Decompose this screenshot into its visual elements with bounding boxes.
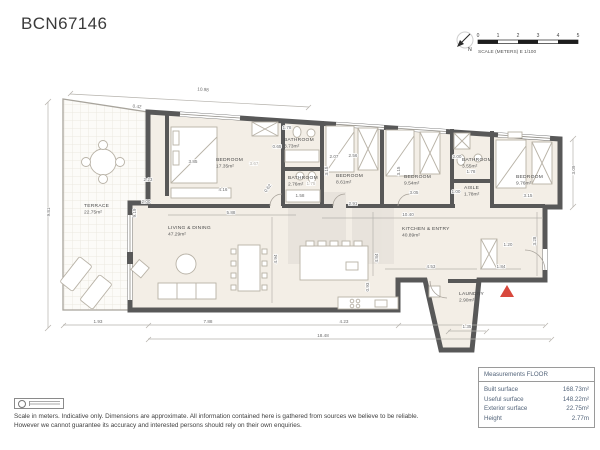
disclaimer-line-1: Scale in meters. Indicative only. Dimens… xyxy=(14,412,574,421)
dimension-label: 2.56 xyxy=(349,153,358,158)
dimension-label: 3.67 xyxy=(250,161,259,166)
terrace-table xyxy=(90,149,116,175)
dimension-label: 9.81 xyxy=(46,207,51,216)
dimension-label: 4.23 xyxy=(340,319,349,324)
dimension-label: 4.84 xyxy=(374,253,379,262)
dining-table xyxy=(238,245,260,291)
dimension-label: 1.78 xyxy=(467,169,476,174)
dimension-label: 10.40 xyxy=(402,212,414,217)
room-area-label: 2.76m² xyxy=(288,182,304,188)
room-label: TERRACE xyxy=(84,203,110,209)
sink xyxy=(307,129,315,137)
dimension-label: 3.15 xyxy=(324,166,329,175)
room-label: BEDROOM xyxy=(516,174,543,180)
room-label: BATHROOM xyxy=(284,137,314,143)
scale-label: SCALE (METERS) E 1/100 xyxy=(478,49,536,55)
room-label: LAUNDRY xyxy=(459,291,485,297)
room-area-label: 1.78m² xyxy=(464,192,480,198)
room-area-label: 2.90m² xyxy=(459,298,475,304)
north-label: N xyxy=(468,47,472,53)
row-value: 168.73m² xyxy=(563,385,589,395)
room-area-label: 40.89m² xyxy=(402,233,420,239)
table-row: Useful surface 148.22m² xyxy=(484,395,589,405)
dimension-label: 1.20 xyxy=(504,242,513,247)
room-label: BATHROOM xyxy=(462,157,492,163)
measurements-header: Measurements FLOOR xyxy=(479,368,594,382)
disclaimer: Scale in meters. Indicative only. Dimens… xyxy=(14,412,574,430)
floorplan-page: BCN67146 N 012345 SCALE (METERS) E 1/100 xyxy=(0,0,600,450)
room-area-label: 8.61m² xyxy=(336,180,352,186)
room-area-label: 22.75m² xyxy=(84,210,102,216)
dimension-label: 1.93 xyxy=(94,319,103,324)
scale-tick: 3 xyxy=(537,33,540,39)
dimension-label: 18.48 xyxy=(317,333,329,338)
dimension-label: 1.00 xyxy=(452,189,461,194)
room-area-label: 9.76m² xyxy=(516,181,532,187)
dimension-label: 4.94 xyxy=(273,254,278,263)
logo-text-bars xyxy=(29,401,60,406)
dimension-label: 5.88 xyxy=(227,210,236,215)
dimension-label: 1.35 xyxy=(463,324,472,329)
dimension-label: 1.58 xyxy=(296,193,305,198)
scale-tick: 0 xyxy=(477,33,480,39)
dimension-label: 3.15 xyxy=(396,166,401,175)
bed xyxy=(326,126,354,172)
dimension-label: 1.75 xyxy=(307,181,316,186)
dimension-label: 0.65 xyxy=(273,144,282,149)
counter-sink xyxy=(375,300,387,307)
row-value: 2.77m xyxy=(572,414,589,424)
sofa xyxy=(158,283,216,299)
dimension-label: 0.93 xyxy=(365,282,370,291)
dimension-label: 2.91 xyxy=(349,201,358,206)
bathtub xyxy=(285,150,319,162)
room-label: AISLE xyxy=(464,185,480,191)
scale-bar: 012345 SCALE (METERS) E 1/100 xyxy=(477,33,580,55)
dimension-label: 3.85 xyxy=(189,159,198,164)
row-label: Useful surface xyxy=(484,395,524,405)
footer-logo xyxy=(14,398,64,409)
dimension-label: 3.09 xyxy=(571,165,576,174)
room-area-label: 17.35m² xyxy=(216,164,234,170)
dimension-label: 3.05 xyxy=(410,190,419,195)
room-label: BEDROOM xyxy=(216,157,243,163)
scale-tick: 1 xyxy=(497,33,500,39)
dimension-label: 10.98 xyxy=(197,87,209,93)
dimension-label: 2.07 xyxy=(330,154,339,159)
dimension-label: 9.19 xyxy=(132,208,137,217)
dimension-label: 4.53 xyxy=(427,264,436,269)
row-value: 148.22m² xyxy=(563,395,589,405)
dimension-label: 2.23 xyxy=(144,177,153,182)
scale-tick: 2 xyxy=(517,33,520,39)
room-area-label: 47.29m² xyxy=(168,232,186,238)
dimension-label: 1.78 xyxy=(283,125,292,130)
room-label: BEDROOM xyxy=(336,173,363,179)
row-label: Built surface xyxy=(484,385,518,395)
dimension-label: 7.88 xyxy=(204,319,213,324)
shelf xyxy=(508,132,522,138)
entrance-marker-icon xyxy=(500,285,514,297)
room-label: LIVING & DINING xyxy=(168,225,211,231)
kitchen-counter xyxy=(338,297,398,309)
disclaimer-line-2: However we cannot guarantee its accuracy… xyxy=(14,421,574,430)
logo-icon xyxy=(18,400,26,408)
dimension-label: 2.00 xyxy=(142,199,151,204)
scale-tick: 4 xyxy=(557,33,560,39)
room-label: BEDROOM xyxy=(404,174,431,180)
dimension-label: 3.15 xyxy=(524,193,533,198)
dimension-label: 0.42 xyxy=(132,104,142,110)
coffee-table xyxy=(176,254,196,274)
dimension-label: 3.28 xyxy=(532,236,537,245)
wall-jamb xyxy=(127,252,133,264)
room-area-label: 9.54m² xyxy=(404,181,420,187)
room-area-label: 3.73m² xyxy=(284,144,300,150)
dimension-label: 2.00 xyxy=(453,154,462,159)
table-row: Built surface 168.73m² xyxy=(484,385,589,395)
dimension-label: 4.16 xyxy=(219,187,228,192)
room-label: KITCHEN & ENTRY xyxy=(402,226,450,232)
toilet xyxy=(293,127,301,138)
island-sink xyxy=(346,262,358,270)
dimension-label: 1.84 xyxy=(497,264,506,269)
scale-tick: 5 xyxy=(577,33,580,39)
north-arrow: N xyxy=(457,32,473,53)
